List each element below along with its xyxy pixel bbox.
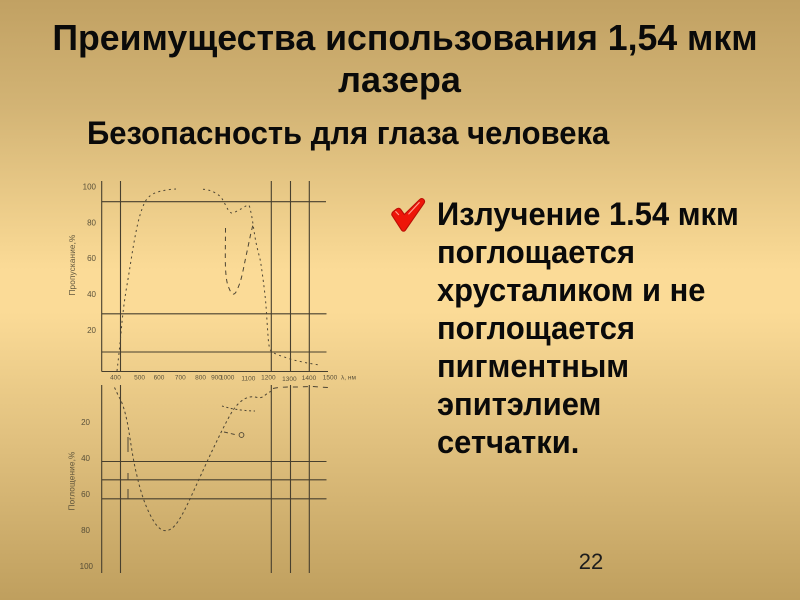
- svg-text:80: 80: [81, 526, 90, 535]
- svg-text:100: 100: [83, 183, 97, 192]
- svg-text:60: 60: [87, 254, 96, 263]
- svg-text:40: 40: [87, 290, 96, 299]
- svg-text:1400: 1400: [302, 375, 317, 382]
- svg-text:1500: 1500: [323, 375, 338, 382]
- svg-text:100: 100: [80, 562, 94, 571]
- svg-text:600: 600: [154, 375, 165, 382]
- svg-text:1200: 1200: [261, 375, 276, 382]
- svg-text:Поглощение,%: Поглощение,%: [68, 452, 77, 511]
- svg-text:1300: 1300: [282, 376, 297, 383]
- svg-text:20: 20: [81, 418, 90, 427]
- svg-text:Пропускание,%: Пропускание,%: [68, 235, 77, 296]
- svg-text:1100: 1100: [241, 376, 255, 383]
- svg-text:400: 400: [110, 375, 121, 382]
- svg-text:1000: 1000: [220, 375, 235, 382]
- svg-text:80: 80: [87, 218, 96, 227]
- svg-text:20: 20: [87, 326, 96, 335]
- svg-text:800: 800: [195, 375, 206, 382]
- svg-text:40: 40: [81, 454, 90, 463]
- svg-text:λ, нм: λ, нм: [341, 375, 356, 382]
- svg-text:500: 500: [134, 375, 145, 382]
- svg-text:700: 700: [175, 375, 186, 382]
- svg-text:60: 60: [81, 490, 90, 499]
